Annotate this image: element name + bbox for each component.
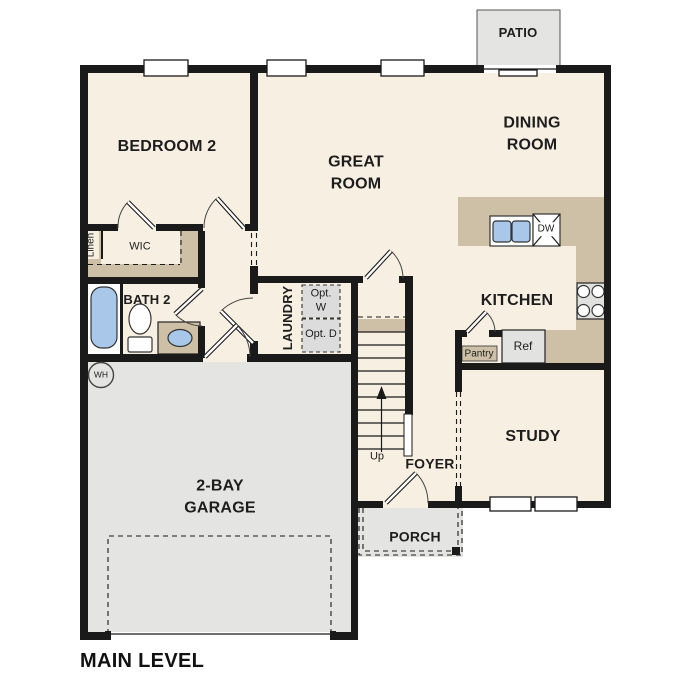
- patio-label: PATIO: [499, 24, 538, 42]
- window: [535, 497, 577, 511]
- study-label: STUDY: [505, 426, 560, 448]
- linen-label: Linen: [84, 233, 98, 257]
- water-heater-label: WH: [94, 369, 108, 380]
- sliding-door-leaf: [499, 70, 537, 76]
- floor-plan: PATIO BEDROOM 2 GREAT ROOM DINING ROOM K…: [0, 0, 687, 687]
- foyer-label: FOYER: [405, 455, 454, 474]
- laundry-label: LAUNDRY: [279, 286, 297, 350]
- great-room-label: GREAT ROOM: [311, 151, 401, 194]
- toilet-tank: [128, 337, 152, 352]
- window: [144, 60, 188, 76]
- dishwasher-label: DW: [537, 222, 556, 236]
- porch-post: [452, 547, 460, 555]
- dining-room-label: DINING ROOM: [477, 112, 587, 155]
- window: [267, 60, 306, 76]
- wic-label: WIC: [129, 240, 150, 255]
- optional-washer-label: Opt. W: [304, 287, 338, 315]
- plan-linework: [0, 0, 687, 687]
- pantry-label: Pantry: [465, 347, 494, 361]
- optional-dryer-label: Opt. D: [304, 328, 338, 342]
- bath2-label: BATH 2: [123, 291, 170, 309]
- kitchen-label: KITCHEN: [481, 290, 554, 312]
- bathtub-icon: [91, 287, 117, 348]
- sink-basin-left: [493, 221, 511, 242]
- refrigerator-label: Ref: [514, 338, 533, 354]
- window: [381, 60, 424, 76]
- stairs-up-label: Up: [370, 450, 384, 465]
- stair-landing: [358, 319, 405, 332]
- bath-sink-icon: [168, 330, 192, 347]
- porch-label: PORCH: [389, 528, 441, 547]
- window: [490, 497, 531, 511]
- plan-title: MAIN LEVEL: [80, 650, 204, 673]
- bedroom2-label: BEDROOM 2: [118, 136, 217, 158]
- stair-rail: [404, 414, 412, 456]
- garage-label: 2-BAY GARAGE: [165, 475, 275, 518]
- sink-basin-right: [512, 221, 530, 242]
